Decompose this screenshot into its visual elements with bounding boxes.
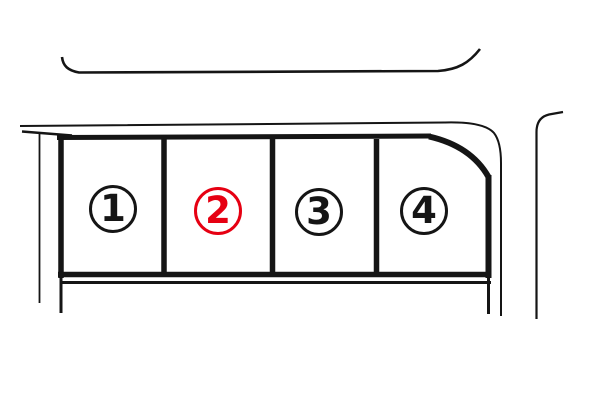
road-edge-right — [537, 112, 564, 319]
lot-3-number: 3 — [295, 188, 343, 236]
lot-map-diagram: 1 2 3 4 — [0, 0, 600, 400]
block-corner-chamfer — [429, 137, 489, 178]
lot-2-number-highlighted: 2 — [194, 187, 242, 235]
road-edge-top — [62, 49, 480, 73]
road-edge-left-stub — [22, 132, 72, 136]
lot-4-number: 4 — [400, 187, 448, 235]
lot-1-number: 1 — [89, 185, 137, 233]
block-top-border — [57, 136, 431, 138]
